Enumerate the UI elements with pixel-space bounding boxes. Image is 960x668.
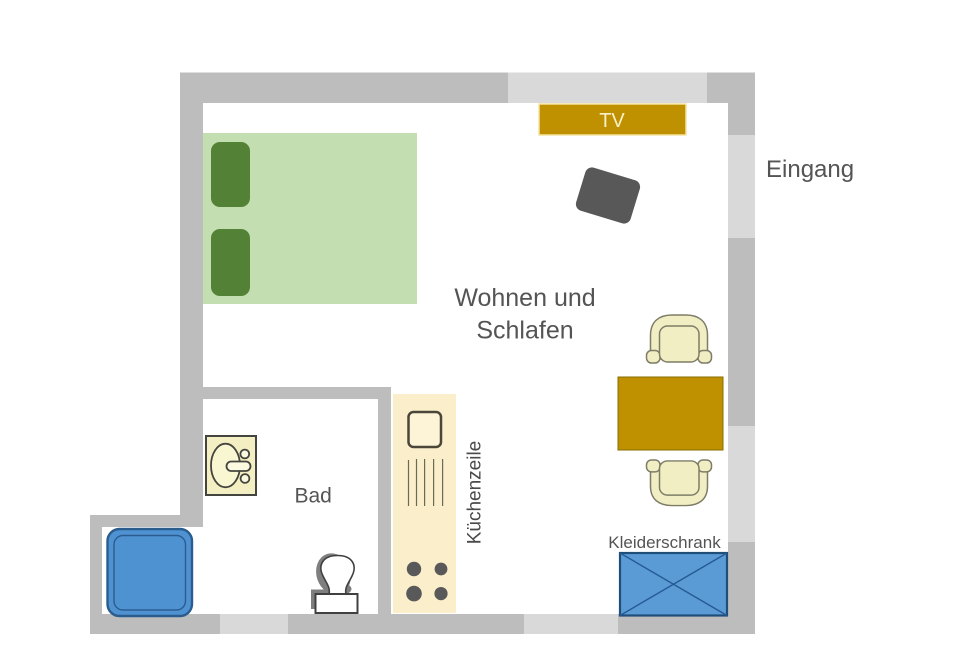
svg-text:Schlafen: Schlafen — [476, 317, 573, 345]
svg-text:Bad: Bad — [295, 485, 332, 508]
svg-text:Eingang: Eingang — [766, 156, 854, 183]
svg-text:TV: TV — [599, 110, 625, 132]
svg-text:Küchenzeile: Küchenzeile — [465, 441, 486, 545]
svg-text:Kleiderschrank: Kleiderschrank — [608, 533, 721, 552]
svg-text:Wohnen und: Wohnen und — [454, 284, 595, 312]
